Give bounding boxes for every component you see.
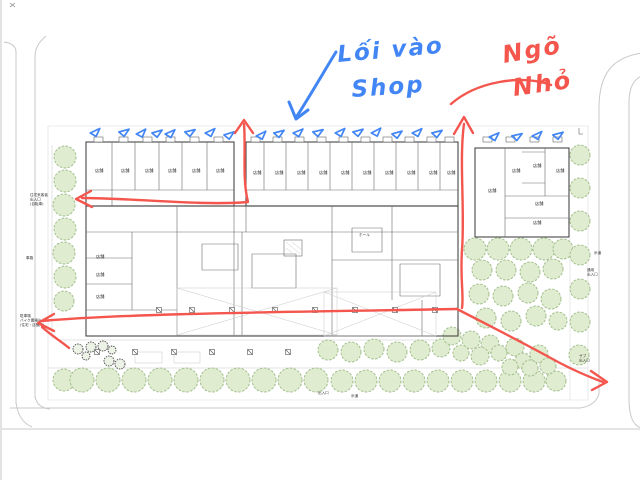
red-route-west (82, 124, 248, 203)
tree-icon (570, 178, 590, 198)
shop-band-east-walls (246, 142, 458, 190)
room-label: 店舗 (95, 167, 104, 173)
shop-door-notch (94, 137, 103, 142)
tree-icon (549, 312, 567, 330)
plan-label-hall: ホール (359, 232, 370, 237)
shop-door-notch (119, 137, 128, 142)
shop-entry-tick-icon (371, 128, 382, 137)
shop-door-notch (143, 137, 152, 142)
tree-icon (54, 170, 76, 192)
tree-icon (122, 368, 146, 392)
tree-icon (355, 370, 377, 392)
room-label: 店舗 (216, 167, 225, 173)
room-label: 店舗 (533, 219, 542, 225)
shop-door-notch (190, 137, 199, 142)
room-label: 店舗 (488, 187, 497, 193)
plan-label-sub-entrance: サブ (579, 353, 587, 358)
tree-icon (54, 266, 76, 288)
planter-box (174, 352, 200, 363)
plan-label-resident-visitor-entrance: (自転車) (30, 201, 44, 206)
tree-icon (526, 306, 546, 326)
room-label: 店舗 (96, 293, 105, 299)
tree-icon (54, 146, 76, 168)
tree-icon (570, 245, 590, 265)
red-route-south (42, 309, 457, 321)
tree-icon (54, 291, 74, 311)
tree-icon (148, 368, 172, 392)
main-building (86, 142, 458, 336)
tree-icon (252, 368, 276, 392)
shop-entry-tick-icon (119, 129, 129, 137)
shop-entry-tick-icon (293, 129, 303, 137)
shop-entry-tick-icon (312, 129, 323, 138)
plan-label-resident-visitor-entrance: 出入口 (30, 196, 41, 201)
shop-door-notch (273, 137, 282, 142)
canopy-outline-east (324, 292, 436, 336)
shrub-icon (108, 346, 116, 354)
tree-icon (518, 283, 538, 303)
corner-sw-outer (16, 402, 32, 427)
room-label: 店舗 (192, 167, 201, 173)
tree-icon (533, 238, 555, 260)
shop-band-west (86, 142, 234, 206)
road-west-top-curve (4, 42, 16, 52)
tree-icon (278, 368, 302, 392)
survey-mark (10, 3, 15, 7)
room-label: 店舗 (96, 271, 105, 277)
shop-entry-tick-icon (273, 130, 284, 138)
room-label: 店舗 (145, 167, 154, 173)
shop-entry-tick-icon (353, 129, 363, 137)
shop-door-notch (383, 137, 392, 142)
plan-label-service-entrance: 通用 (587, 267, 595, 272)
red-arrowhead-left-south (38, 314, 54, 331)
corner-se-outer (629, 402, 640, 428)
tree-icon (496, 260, 516, 280)
room-label: 店舗 (363, 169, 372, 175)
room-label: 店舗 (297, 169, 306, 175)
plan-label-parking-bike-entrance: 駐車場 (20, 313, 31, 318)
tree-icon (469, 284, 489, 304)
plan-label-sub-entrance: 出入口 (579, 357, 590, 362)
tree-icon (522, 360, 538, 376)
room-label: 店舗 (96, 253, 105, 259)
corner-se-inner (580, 394, 599, 408)
tree-icon (53, 194, 75, 216)
tree-icon (510, 238, 532, 260)
shrub-icon (104, 356, 114, 366)
tree-icon (387, 342, 407, 362)
tree-icon (96, 368, 120, 392)
tree-icon (54, 218, 76, 240)
shop-entry-tick-icon (152, 130, 162, 138)
room-label: 店舗 (407, 169, 416, 175)
tree-icon (475, 370, 497, 392)
tree-icon (570, 279, 590, 299)
blue-note-line2: Shop (351, 72, 426, 103)
shop-entry-tick-icon (184, 129, 195, 138)
shop-door-notch (295, 137, 304, 142)
room-label: 店舗 (447, 169, 456, 175)
red-route-vertical (461, 124, 464, 308)
red-arrow-tail-flick (42, 327, 69, 348)
road-west-top-curve2 (35, 36, 46, 57)
shrub-icon (73, 344, 83, 354)
blue-note-line1: Lối vào (336, 32, 445, 68)
bench-mark (579, 128, 583, 134)
shop-entry-tick-icon (136, 129, 147, 138)
shop-door-notch (361, 137, 370, 142)
shop-entry-tick-icon (335, 128, 346, 137)
tree-icon (464, 238, 486, 260)
tree-icon (570, 145, 590, 165)
shop-door-notch (317, 137, 326, 142)
room-label: 店舗 (341, 169, 350, 175)
plan-label-resident-visitor-entrance: 住宅来客者 (30, 192, 48, 197)
tree-icon (174, 368, 198, 392)
blue-annotation: Lối vào Shop (289, 32, 445, 119)
site-boundary (10, 3, 588, 400)
screenshot-root: 店舗店舗店舗店舗店舗店舗店舗店舗店舗店舗店舗店舗店舗店舗店舗店舗店舗店舗店舗店舗… (0, 0, 640, 480)
shop-entry-tick-icon (224, 132, 234, 140)
shop-door-notch (339, 137, 348, 142)
shop-entry-tick-icon (431, 130, 442, 138)
shop-entry-tick-icon (392, 131, 402, 139)
room-label: 店舗 (556, 167, 565, 173)
shrub-icon (115, 359, 125, 369)
tree-icon (318, 340, 338, 360)
tree-icon (502, 359, 518, 375)
shop-door-notch (214, 137, 223, 142)
plan-label-service-entrance: 出入口 (587, 271, 598, 276)
tree-icon (543, 259, 563, 279)
corner-ne-outer (629, 76, 640, 103)
room-label: 店舗 (533, 162, 542, 168)
tree-icon (520, 262, 540, 282)
room-label: 店舗 (429, 169, 438, 175)
tree-icon (410, 340, 430, 360)
red-note-line2: Nhỏ (511, 66, 574, 102)
tree-icon (53, 242, 75, 264)
tree-icon (487, 238, 509, 260)
tree-icon (403, 370, 425, 392)
landscaping-trees (53, 145, 590, 392)
room-label: 店舗 (121, 167, 130, 173)
tree-icon (304, 368, 328, 392)
tree-icon (451, 370, 473, 392)
tree-icon (570, 211, 590, 231)
tree-icon (472, 260, 492, 280)
shop-door-notch (445, 137, 454, 142)
planter-box (135, 352, 162, 363)
tree-icon (427, 370, 449, 392)
shop-band-west-walls (86, 142, 234, 206)
room-label: 店舗 (319, 169, 328, 175)
plan-label-pedestrian-entrance: 出入口 (318, 390, 329, 395)
room-label: 店舗 (385, 169, 394, 175)
shop-entry-tick-icon (205, 129, 216, 137)
tree-icon (491, 345, 507, 361)
room-label: 店舗 (275, 169, 284, 175)
shop-door-notch (427, 137, 436, 142)
tree-icon (453, 345, 469, 361)
tree-icon (379, 370, 401, 392)
plan-label-sidewalk-south: 歩道 (351, 393, 359, 398)
tree-icon (70, 368, 94, 392)
shop-entry-tick-icon (90, 128, 101, 137)
shop-entry-ticks (90, 128, 563, 141)
shrub-icon (82, 352, 90, 360)
tree-icon (331, 370, 353, 392)
tree-icon (493, 286, 513, 306)
shop-entry-tick-icon (412, 129, 423, 137)
tree-icon (570, 312, 590, 332)
site-plan-drawing: 店舗店舗店舗店舗店舗店舗店舗店舗店舗店舗店舗店舗店舗店舗店舗店舗店舗店舗店舗店舗… (2, 0, 640, 480)
tree-icon (226, 368, 250, 392)
tree-icon (341, 342, 361, 362)
tree-icon (471, 347, 489, 365)
tree-icon (364, 339, 384, 359)
shop-door-notch (405, 137, 414, 142)
plan-label-roadway: 車路 (26, 255, 34, 260)
room-label: 店舗 (168, 167, 177, 173)
red-note-line1: Ngõ (500, 31, 564, 69)
room-label: 店舗 (512, 167, 521, 173)
room-label: 店舗 (535, 200, 544, 206)
corner-ne-inner (599, 53, 640, 108)
plan-label-sidewalk-east: 歩道 (594, 250, 602, 255)
tree-icon (200, 368, 224, 392)
tree-icon (541, 289, 561, 309)
blue-arrow-shaft (297, 52, 336, 116)
room-label: 店舗 (253, 169, 262, 175)
tree-icon (501, 311, 521, 331)
shrub-cluster (73, 341, 125, 369)
tree-icon (546, 371, 566, 391)
